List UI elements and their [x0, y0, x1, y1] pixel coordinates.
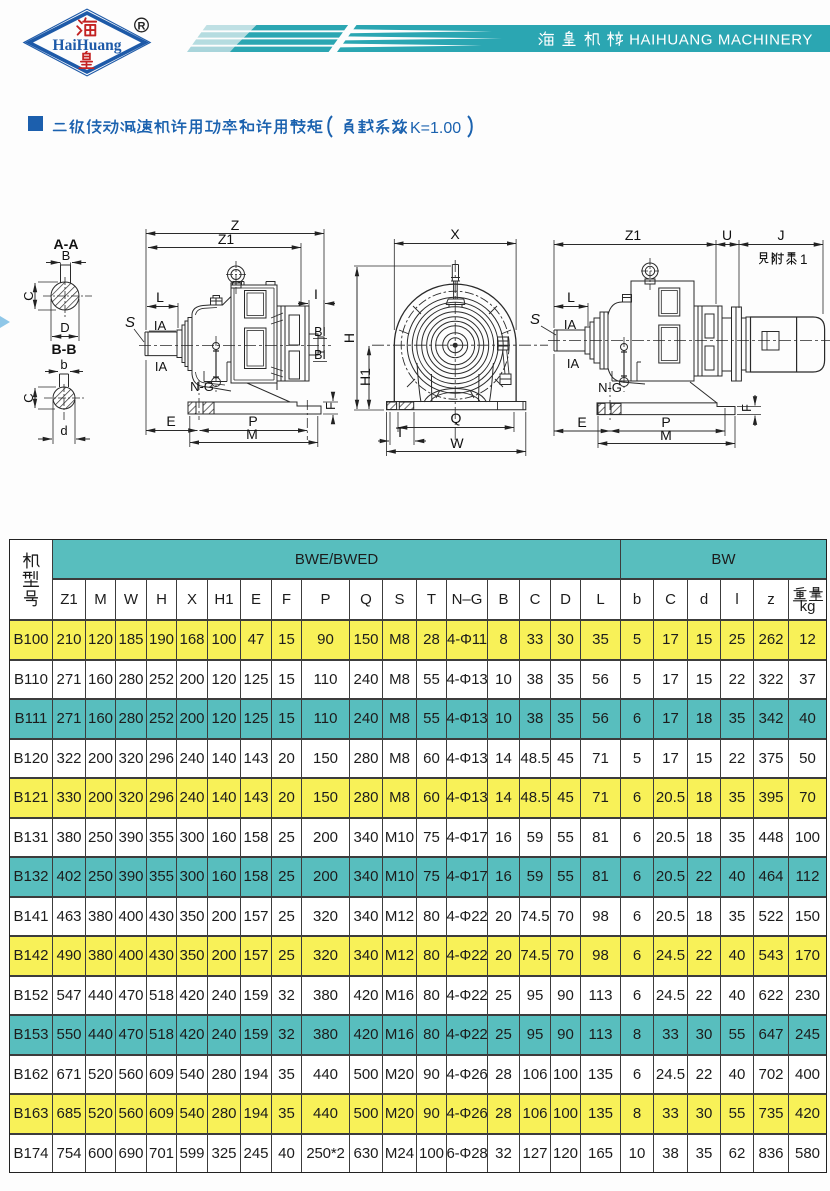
svg-text:IA: IA: [567, 356, 580, 371]
svg-text:IA: IA: [155, 359, 168, 374]
svg-text:b: b: [60, 357, 67, 372]
svg-text:IA: IA: [154, 318, 167, 333]
svg-text:C: C: [21, 291, 36, 300]
svg-text:X: X: [450, 226, 460, 242]
svg-text:Z1: Z1: [218, 231, 235, 247]
svg-text:U: U: [722, 227, 732, 243]
svg-text:d: d: [60, 423, 67, 438]
svg-text:L: L: [567, 289, 575, 305]
svg-text:Q: Q: [451, 410, 462, 426]
svg-text:M: M: [660, 427, 672, 443]
svg-text:K=1.00: K=1.00: [410, 120, 461, 137]
svg-text:C: C: [21, 393, 36, 402]
svg-text:H1: H1: [357, 368, 373, 386]
svg-text:R: R: [138, 21, 146, 33]
svg-text:J: J: [778, 227, 785, 243]
svg-text:E: E: [577, 414, 586, 430]
svg-text:BI: BI: [314, 348, 326, 362]
svg-text:HAIHUANG MACHINERY: HAIHUANG MACHINERY: [629, 32, 813, 49]
svg-text:1: 1: [800, 252, 808, 267]
svg-text:F: F: [739, 404, 754, 412]
svg-text:B: B: [62, 248, 71, 263]
svg-text:Z1: Z1: [625, 227, 642, 243]
svg-text:H: H: [341, 333, 357, 343]
svg-text:L: L: [156, 289, 164, 305]
svg-text:IA: IA: [564, 317, 577, 332]
svg-text:E: E: [166, 413, 175, 429]
svg-text:F: F: [323, 402, 338, 410]
svg-text:I: I: [314, 286, 318, 302]
svg-text:M: M: [246, 426, 258, 442]
svg-text:S: S: [530, 311, 540, 328]
svg-text:T: T: [396, 424, 405, 440]
svg-text:W: W: [450, 435, 464, 451]
svg-text:S: S: [125, 314, 135, 331]
svg-text:D: D: [60, 320, 69, 335]
svg-text:BI: BI: [314, 325, 326, 339]
svg-text:B-B: B-B: [52, 341, 77, 357]
svg-text:N-G: N-G: [598, 380, 622, 395]
